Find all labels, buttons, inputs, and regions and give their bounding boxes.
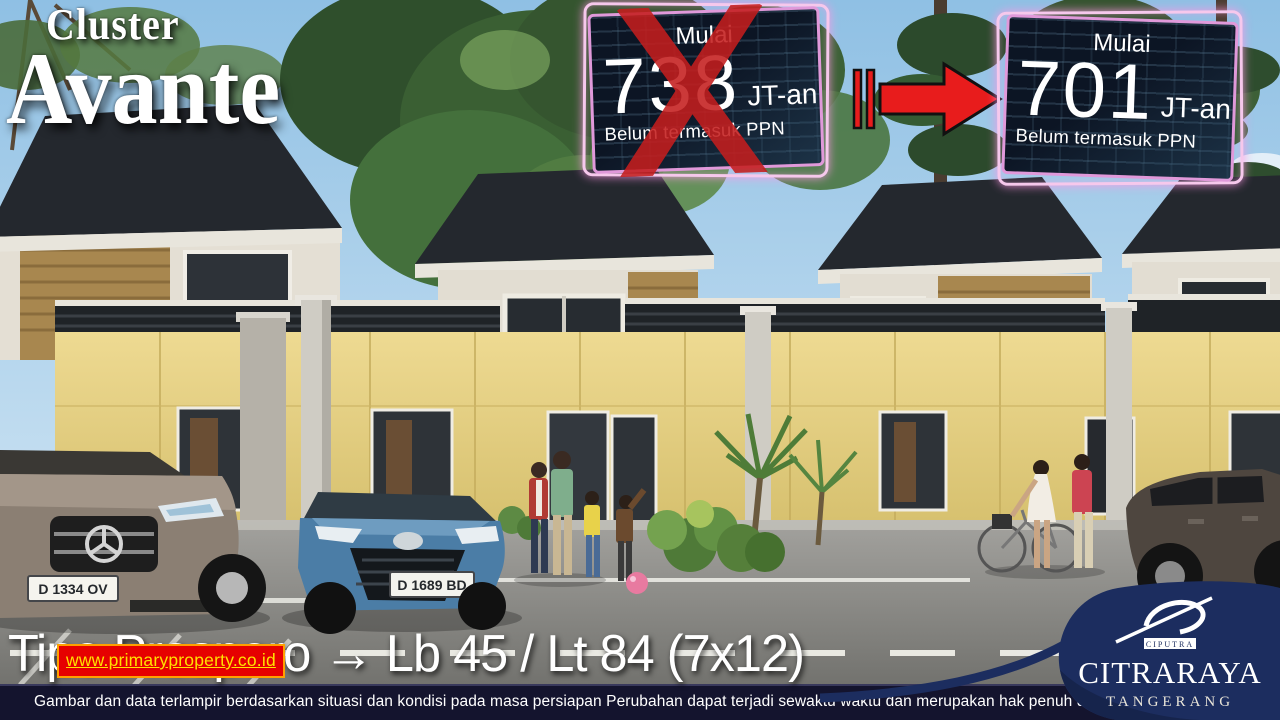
price-old-unit: JT-an [747, 78, 818, 112]
logo-brand-text: CITRARAYA [1078, 655, 1262, 690]
title-line-avante: Avante [6, 47, 280, 131]
logo-group-text: CIPUTRA [1146, 640, 1194, 649]
cluster-title: Cluster Avante [6, 2, 280, 131]
price-old-value: 738 [601, 43, 740, 126]
flyer: D 1334 OV D 1689 BD [0, 0, 1280, 720]
price-tag-new-body: Mulai 701 JT-an Belum termasuk PPN [1001, 14, 1238, 182]
price-tag-new: Mulai 701 JT-an Belum termasuk PPN [1001, 14, 1238, 182]
price-tag-old: Mulai 738 JT-an Belum termasuk PPN [587, 6, 824, 174]
license-plate-blue: D 1689 BD [397, 577, 466, 593]
car-camry: D 1689 BD [282, 492, 522, 634]
logo-city-text: TANGERANG [1106, 694, 1234, 710]
watermark-link[interactable]: www.primaryproperty.co.id [57, 644, 285, 678]
citraraya-logo: CIPUTRA CITRARAYA TANGERANG [820, 580, 1280, 720]
price-tag-old-body: Mulai 738 JT-an Belum termasuk PPN [587, 6, 824, 174]
price-new-unit: JT-an [1160, 91, 1231, 125]
license-plate-left: D 1334 OV [38, 581, 108, 597]
arrow-right-icon [852, 58, 1004, 138]
price-new-value: 701 [1016, 48, 1155, 131]
